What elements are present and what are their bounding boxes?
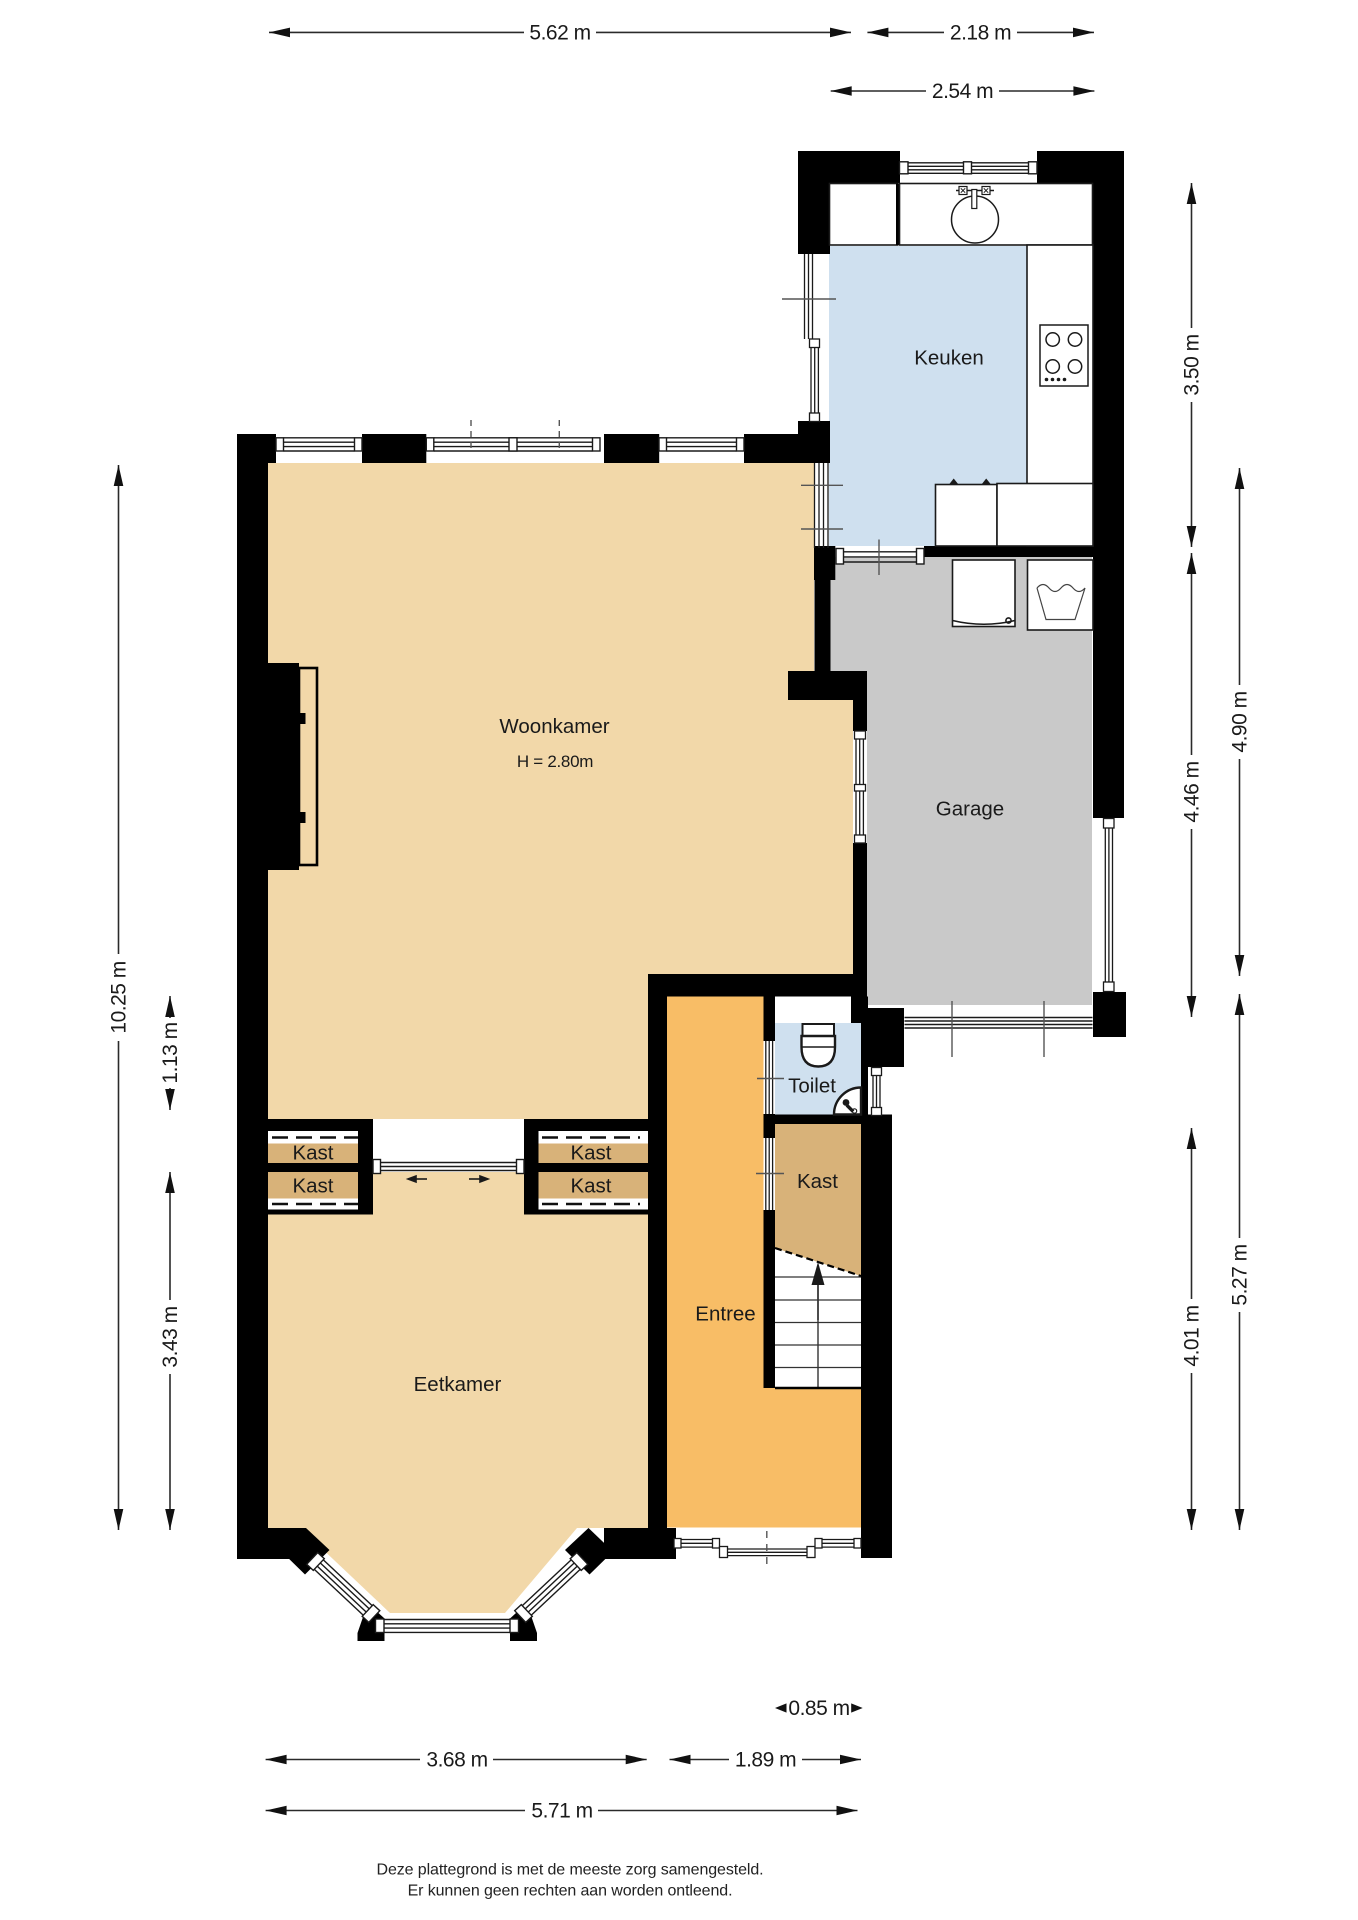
svg-text:Kast: Kast [570, 1142, 611, 1165]
svg-text:4.46 m: 4.46 m [1181, 761, 1204, 822]
svg-text:2.54 m: 2.54 m [932, 80, 993, 103]
svg-text:Kast: Kast [292, 1175, 333, 1198]
svg-text:0.85 m: 0.85 m [788, 1697, 849, 1720]
svg-text:Kast: Kast [797, 1170, 838, 1193]
svg-text:Kast: Kast [292, 1142, 333, 1165]
svg-text:3.50 m: 3.50 m [1181, 334, 1204, 395]
svg-text:3.43 m: 3.43 m [159, 1306, 182, 1367]
svg-text:5.71 m: 5.71 m [531, 1800, 592, 1823]
svg-text:4.90 m: 4.90 m [1229, 691, 1252, 752]
svg-text:10.25 m: 10.25 m [108, 961, 131, 1033]
svg-text:3.68 m: 3.68 m [426, 1749, 487, 1772]
svg-text:H = 2.80m: H = 2.80m [517, 752, 593, 771]
svg-text:Eetkamer: Eetkamer [414, 1373, 502, 1396]
svg-text:Deze plattegrond is met de mee: Deze plattegrond is met de meeste zorg s… [376, 1862, 763, 1879]
svg-text:2.18 m: 2.18 m [950, 21, 1011, 44]
svg-text:5.62 m: 5.62 m [529, 21, 590, 44]
svg-text:1.89 m: 1.89 m [735, 1749, 796, 1772]
svg-text:Kast: Kast [570, 1175, 611, 1198]
svg-text:5.27 m: 5.27 m [1229, 1244, 1252, 1305]
svg-text:Toilet: Toilet [788, 1075, 836, 1098]
svg-text:Keuken: Keuken [914, 347, 984, 370]
svg-text:Entree: Entree [695, 1303, 755, 1326]
svg-text:Garage: Garage [936, 798, 1004, 821]
svg-text:Woonkamer: Woonkamer [499, 715, 609, 738]
svg-text:Er kunnen geen rechten aan wor: Er kunnen geen rechten aan worden ontlee… [408, 1883, 733, 1900]
svg-text:4.01 m: 4.01 m [1181, 1305, 1204, 1366]
svg-text:1.13 m: 1.13 m [159, 1022, 182, 1083]
